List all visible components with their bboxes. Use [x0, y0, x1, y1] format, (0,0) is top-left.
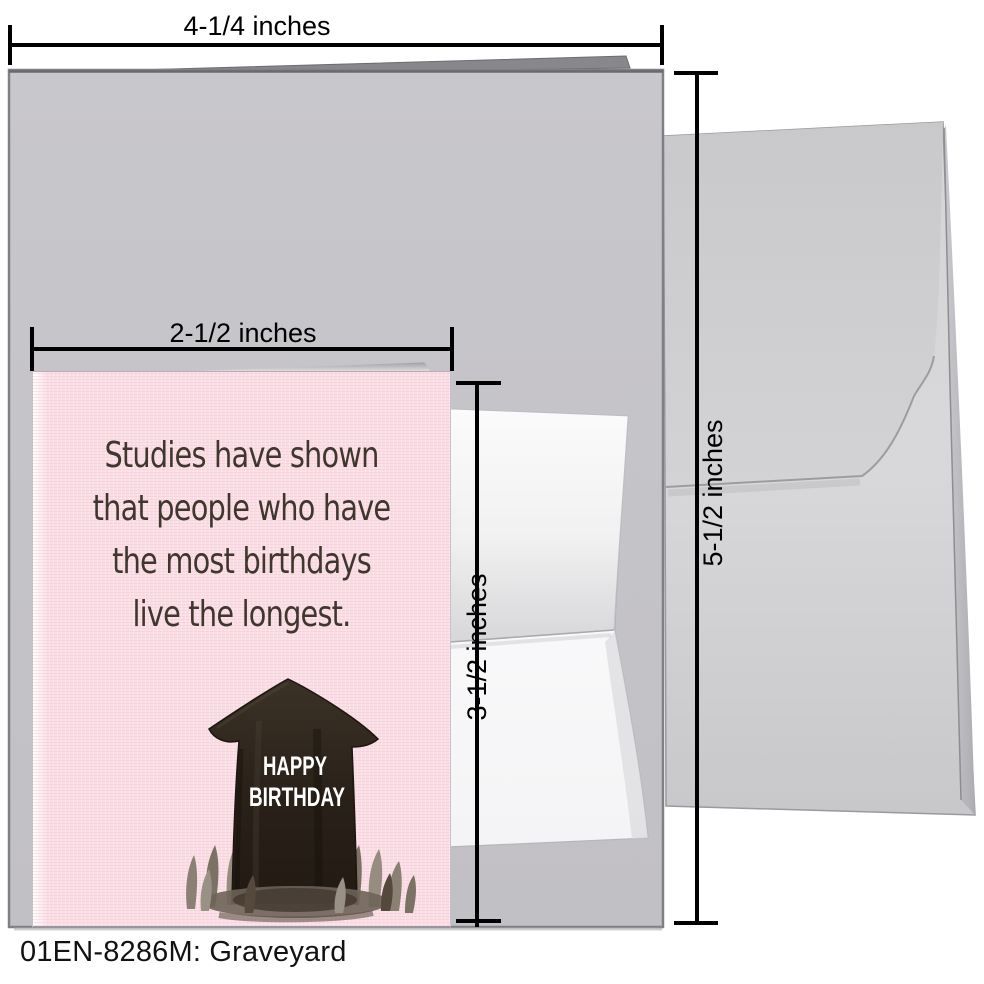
- card-width-dimension-line: [8, 43, 664, 47]
- message-line: that people who have: [80, 482, 404, 535]
- tombstone-illustration: HAPPY BIRTHDAY: [149, 659, 449, 928]
- product-caption: 01EN-8286M: Graveyard: [20, 936, 347, 969]
- product-mockup-image: Studies have shown that people who have …: [0, 0, 984, 984]
- tombstone: HAPPY BIRTHDAY: [209, 679, 378, 903]
- card-width-left-tick: [8, 25, 12, 65]
- message-line: live the longest.: [80, 588, 404, 641]
- notecard-message: Studies have shown that people who have …: [80, 429, 404, 641]
- notecard-width-left-tick: [30, 327, 34, 371]
- notecard-height-bottom-tick: [456, 919, 501, 923]
- message-line: the most birthdays: [80, 535, 404, 588]
- card-height-dimension-label: 5-1/2 inches: [698, 413, 728, 573]
- notecard-width-right-tick: [450, 327, 454, 371]
- card-height-bottom-tick: [674, 921, 718, 925]
- notecard-height-dimension-label: 3-1/2 inches: [462, 567, 492, 727]
- card-width-right-tick: [660, 25, 664, 65]
- message-line: Studies have shown: [80, 429, 404, 482]
- notecard-height-top-tick: [456, 381, 501, 385]
- tombstone-text-line2: BIRTHDAY: [249, 782, 345, 812]
- card-width-dimension-label: 4-1/4 inches: [177, 11, 337, 42]
- notecard-front: Studies have shown that people who have …: [32, 371, 451, 928]
- tombstone-text-line1: HAPPY: [263, 751, 327, 781]
- notecard-width-dimension-label: 2-1/2 inches: [163, 318, 323, 349]
- card-height-top-tick: [674, 71, 718, 75]
